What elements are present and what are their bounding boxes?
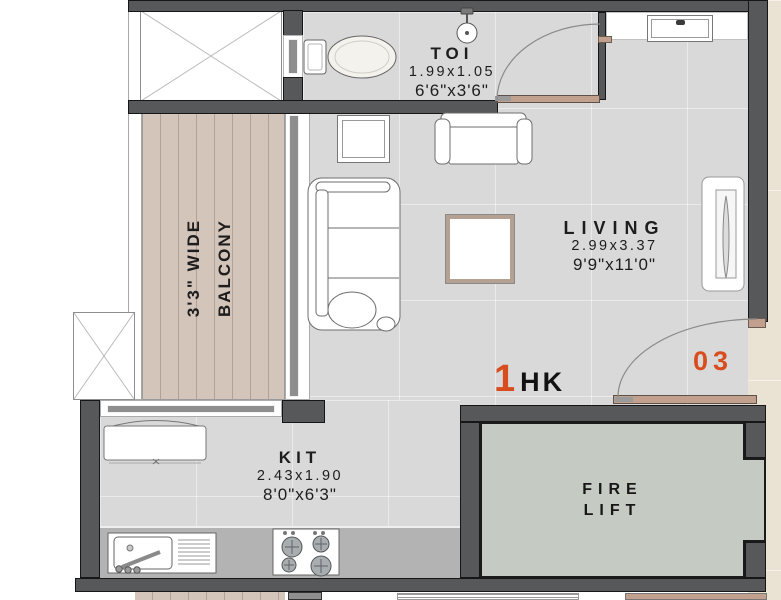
balcony-label-line2: BALCONY xyxy=(209,188,240,348)
kitchen-label-block: KIT 2.43x1.90 8'0"x6'3" xyxy=(205,448,395,504)
unit-number: 1 xyxy=(494,358,515,400)
toilet-dim-ft: 6'6"x3'6" xyxy=(352,81,552,100)
flat-number: 03 xyxy=(693,346,733,377)
toilet-dim-m: 1.99x1.05 xyxy=(352,64,552,81)
floor-plan: TOI 1.99x1.05 6'6"x3'6" LIVING 2.99x3.37… xyxy=(0,0,781,600)
toilet-name: TOI xyxy=(352,44,552,64)
lower-unit-wall-sliver xyxy=(288,592,322,600)
lower-unit-door-sliver xyxy=(625,593,767,600)
unit-type: HK xyxy=(520,367,565,397)
lower-unit-window-sliver xyxy=(397,593,579,600)
kitchen-name: KIT xyxy=(205,448,395,468)
kitchen-dim-m: 2.43x1.90 xyxy=(205,468,395,485)
fire-lift-label: FIRE LIFT xyxy=(480,422,745,578)
lower-unit-balcony-sliver xyxy=(135,592,285,600)
living-dim-m: 2.99x3.37 xyxy=(517,238,712,255)
fire-lift-line1: FIRE xyxy=(582,479,642,500)
living-label-block: LIVING 2.99x3.37 9'9"x11'0" xyxy=(517,218,712,274)
living-dim-ft: 9'9"x11'0" xyxy=(517,255,712,274)
unit-type-label: 1HK xyxy=(494,358,565,401)
toilet-label-block: TOI 1.99x1.05 6'6"x3'6" xyxy=(352,44,552,100)
kitchen-dim-ft: 8'0"x6'3" xyxy=(205,485,395,504)
balcony-label: 3'3" WIDE BALCONY xyxy=(178,188,242,348)
entrance-door-swing-icon xyxy=(618,319,757,397)
fire-lift-line2: LIFT xyxy=(584,500,642,521)
living-name: LIVING xyxy=(517,218,712,238)
balcony-label-line1: 3'3" WIDE xyxy=(178,188,209,348)
